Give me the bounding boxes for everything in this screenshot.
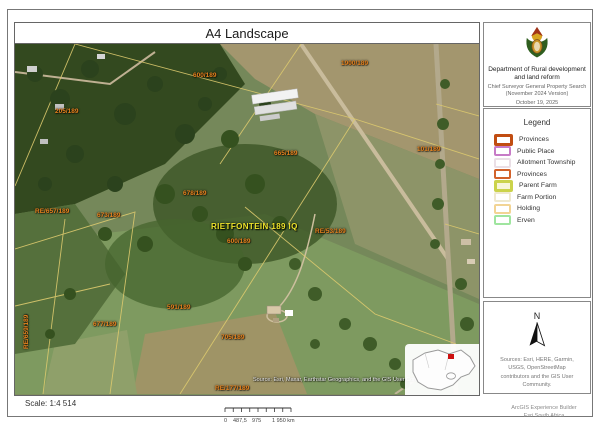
legend-swatch-4	[494, 180, 513, 192]
legend-item-label: Erven	[517, 217, 535, 224]
parcel-label: RE/657/189	[35, 208, 69, 215]
map-title-bar: A4 Landscape	[14, 22, 480, 44]
scale-bar: 0 487,5 975 1 950 km	[224, 400, 304, 426]
legend-swatch-5	[494, 192, 511, 202]
legend-item: Parent Farm	[484, 180, 590, 192]
legend-item-label: Public Place	[517, 148, 554, 155]
export-date: October 19, 2025	[484, 100, 590, 106]
legend-swatch-1	[494, 146, 511, 156]
parcel-label: RE/177/189	[215, 385, 249, 392]
legend-swatch-6	[494, 204, 511, 214]
parcel-label: 665/189	[274, 150, 298, 157]
parcel-label: 600/189	[193, 72, 217, 79]
parcel-label: 101/189	[417, 146, 441, 153]
legend-swatch-0	[494, 134, 513, 146]
coat-of-arms-icon	[519, 26, 555, 60]
aerial-imagery	[15, 44, 479, 394]
parcel-label: 673/189	[97, 212, 121, 219]
legend-item-label: Provinces	[519, 136, 549, 143]
north-sources-panel: N Sources: Esri, HERE, Garmin, USGS, Ope…	[483, 301, 591, 394]
legend-item: Holding	[484, 203, 590, 215]
scale-tick-label: 487,5	[233, 418, 247, 424]
legend-item: Allotment Township	[484, 157, 590, 169]
logo-panel: Department of Rural development and land…	[483, 22, 591, 107]
north-arrow-icon	[527, 321, 547, 347]
parcel-label: 678/189	[183, 190, 207, 197]
legend-item-label: Farm Portion	[517, 194, 556, 201]
app-credit-line2: Esri South Africa	[498, 413, 590, 421]
north-label: N	[484, 311, 590, 321]
south-africa-outline	[405, 344, 480, 395]
department-name-line1: Department of Rural development	[484, 66, 590, 74]
map-canvas: 205/189 600/189 1900/189 665/189 101/189…	[14, 43, 480, 396]
app-credit-line1: ArcGIS Experience Builder	[498, 405, 590, 413]
page-title: A4 Landscape	[205, 26, 288, 41]
scale-tick-label: 1 950 km	[272, 418, 295, 424]
parcel-label: RE/53/189	[315, 228, 346, 235]
sources-attribution: Sources: Esri, HERE, Garmin, USGS, OpenS…	[495, 356, 579, 389]
scale-tick-label: 0	[224, 418, 227, 424]
legend-item-label: Holding	[517, 205, 540, 212]
parcel-label: 591/189	[167, 304, 191, 311]
parcel-label: 205/189	[55, 108, 79, 115]
farm-name-label: RIETFONTEIN 189 IQ	[211, 222, 298, 231]
legend-swatch-2	[494, 158, 511, 168]
app-subtitle-line2: (November 2024 Version)	[484, 91, 590, 98]
app-subtitle-line1: Chief Surveyor General Property Search	[484, 84, 590, 91]
app-credit: ArcGIS Experience Builder Esri South Afr…	[498, 405, 590, 420]
scale-tick-label: 975	[252, 418, 261, 424]
legend-item-label: Provinces	[517, 171, 547, 178]
legend-item-label: Allotment Township	[517, 159, 575, 166]
scale-ratio-text: Scale: 1:4 514	[25, 399, 76, 408]
parcel-label-vertical: RE/659/189	[23, 315, 30, 349]
parcel-label: 1900/189	[341, 60, 368, 67]
legend-item: Provinces	[484, 134, 590, 146]
department-name-line2: and land reform	[484, 74, 590, 82]
parcel-label: 705/189	[221, 334, 245, 341]
parcel-label: 677/189	[93, 321, 117, 328]
inset-locator-map	[405, 344, 480, 395]
parcel-label: 600/189	[227, 238, 251, 245]
scale-bar-ruler	[224, 407, 292, 413]
legend-item: Public Place	[484, 146, 590, 158]
legend-panel: Legend Provinces Public Place Allotment …	[483, 108, 591, 298]
location-marker	[448, 354, 454, 359]
legend-item: Provinces	[484, 169, 590, 181]
legend-title: Legend	[484, 118, 590, 127]
legend-swatch-7	[494, 215, 511, 225]
legend-item: Erven	[484, 215, 590, 227]
legend-item-label: Parent Farm	[519, 182, 557, 189]
legend-item: Farm Portion	[484, 192, 590, 204]
legend-swatch-3	[494, 169, 511, 179]
